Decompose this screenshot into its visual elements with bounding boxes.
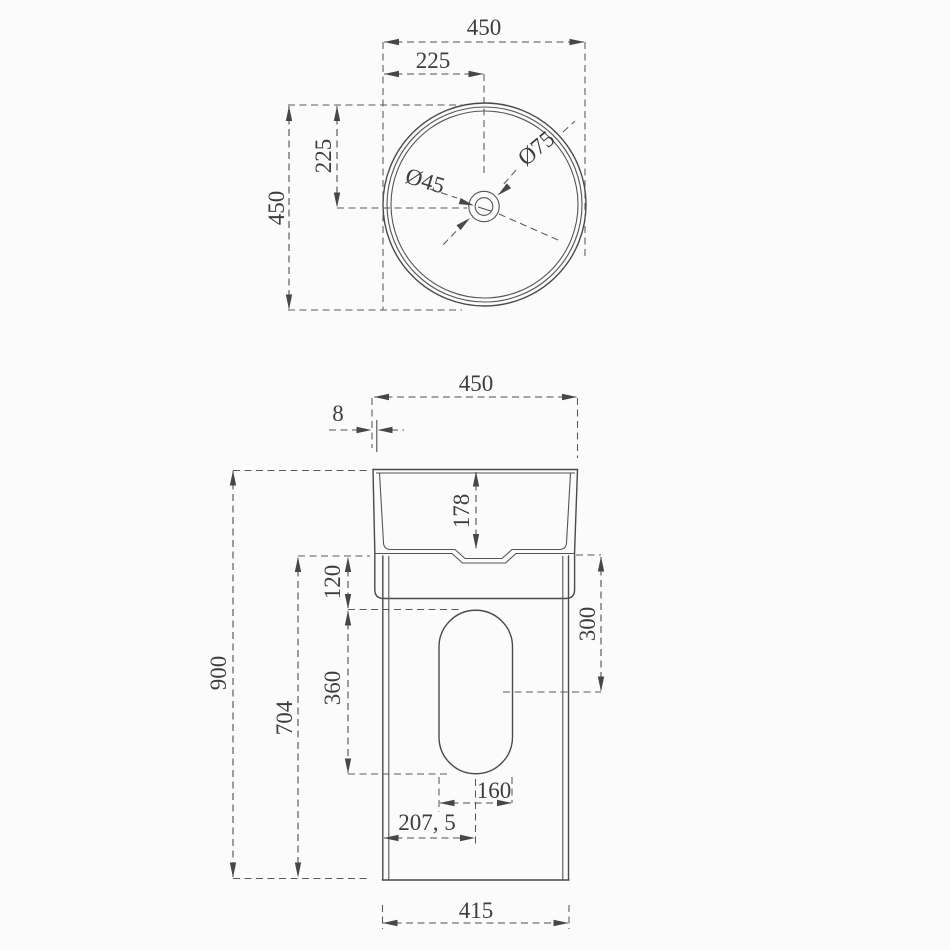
front-view: 450 8 178 900 704 (206, 371, 604, 929)
dim-label-cutout-height: 360 (320, 671, 345, 706)
dim-label-base-width: 415 (459, 898, 494, 923)
dim-cutout-center-offset: 207, 5 (384, 810, 476, 841)
dim-top-overall-width: 450 (384, 15, 585, 45)
dim-label-cutout-width: 160 (477, 778, 512, 803)
dim-label-cutout-center-offset: 207, 5 (398, 810, 456, 835)
dim-rim-to-cutout-center: 300 (575, 557, 604, 692)
dim-label-rim-to-cutout: 120 (320, 565, 345, 600)
front-view-construction-lines (233, 398, 601, 929)
dim-label-pedestal-height: 704 (272, 700, 297, 735)
dim-label-overall-height: 900 (206, 656, 231, 691)
dim-drain-hole: Ø45 (403, 163, 558, 240)
faucet-hole-outer-circle (469, 191, 499, 221)
dim-pedestal-height: 704 (272, 557, 301, 878)
dim-label-rim-lip: 8 (332, 401, 344, 426)
dim-rim-to-cutout: 120 (320, 557, 351, 609)
dim-overall-height: 900 (206, 471, 236, 878)
dim-label-top-center-y: 225 (311, 139, 336, 174)
dim-top-center-x: 225 (384, 48, 484, 77)
pedestal-cutout-oval (439, 610, 513, 773)
technical-drawing-canvas: 450 225 450 225 Ø45 (0, 0, 950, 950)
dim-label-rim-to-cutout-center: 300 (575, 607, 600, 642)
dim-faucet-hole: Ø75 (441, 121, 575, 247)
washbasin-technical-drawing: 450 225 450 225 Ø45 (0, 0, 950, 950)
dim-label-faucet-diameter: Ø75 (513, 126, 559, 171)
dim-basin-height: 178 (449, 472, 479, 550)
dim-label-top-width: 450 (467, 15, 502, 40)
dim-cutout-height: 360 (320, 611, 351, 774)
dim-front-top-width: 450 (374, 371, 577, 400)
dim-base-width: 415 (383, 898, 569, 926)
dim-label-top-center-x: 225 (416, 48, 451, 73)
dim-label-drain-diameter: Ø45 (403, 163, 448, 198)
dim-label-basin-height: 178 (449, 494, 474, 529)
dim-label-front-width: 450 (459, 371, 494, 396)
dim-top-center-y: 225 (311, 106, 340, 208)
dim-label-top-depth: 450 (264, 191, 289, 226)
drain-hole-circle (475, 198, 493, 216)
dim-rim-lip: 8 (329, 401, 404, 433)
dim-top-overall-depth: 450 (264, 106, 292, 310)
top-view: 450 225 450 225 Ø45 (264, 15, 586, 310)
